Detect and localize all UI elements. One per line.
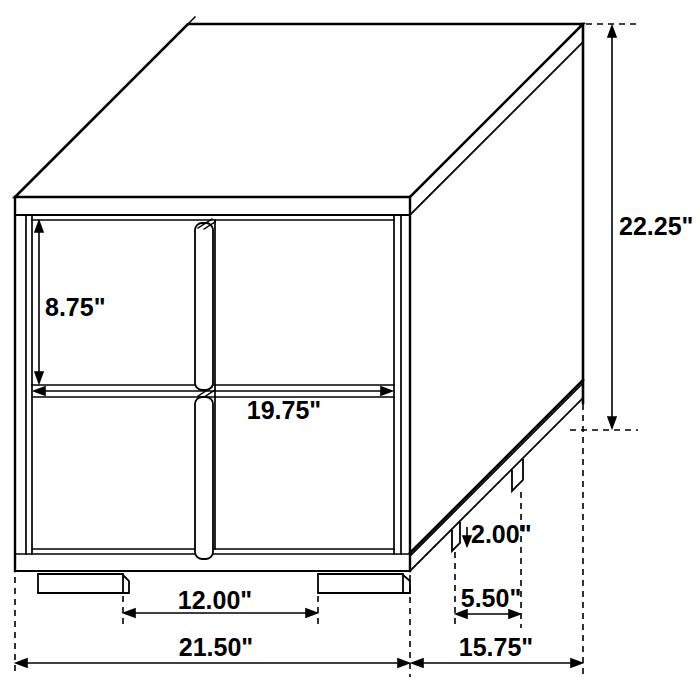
- dim-opening-width: [34, 387, 392, 395]
- dim-overall-height: [608, 26, 616, 428]
- dim-front-leg-spacing-label: 12.00": [178, 586, 252, 614]
- bottom-drawer-handle: [195, 397, 213, 559]
- dim-side-leg-spacing-label: 5.50": [461, 584, 522, 612]
- top-drawer-handle: [195, 223, 213, 390]
- dim-overall-width-label: 21.50": [179, 633, 253, 661]
- nightstand-dimension-diagram: 8.75" 22.25" 19.75" 2.00" 5.50" 12.00" 2…: [0, 0, 700, 700]
- dim-leg-height: [463, 527, 471, 546]
- dim-overall-depth-label: 15.75": [459, 633, 533, 661]
- dimension-annotations: 8.75" 22.25" 19.75" 2.00" 5.50" 12.00" 2…: [15, 24, 693, 677]
- technical-drawing: 8.75" 22.25" 19.75" 2.00" 5.50" 12.00" 2…: [0, 0, 700, 700]
- top-band-side: [410, 42, 583, 215]
- front-right-foot: [318, 574, 410, 593]
- top-face: [15, 24, 583, 197]
- dim-drawer-height: [35, 221, 43, 383]
- dim-overall-height-label: 22.25": [619, 212, 693, 240]
- dim-leg-height-label: 2.00": [471, 520, 532, 548]
- extension-lines: [15, 24, 638, 677]
- front-left-foot: [38, 574, 129, 593]
- dim-drawer-height-label: 8.75": [45, 293, 106, 321]
- dim-opening-width-label: 19.75": [247, 396, 321, 424]
